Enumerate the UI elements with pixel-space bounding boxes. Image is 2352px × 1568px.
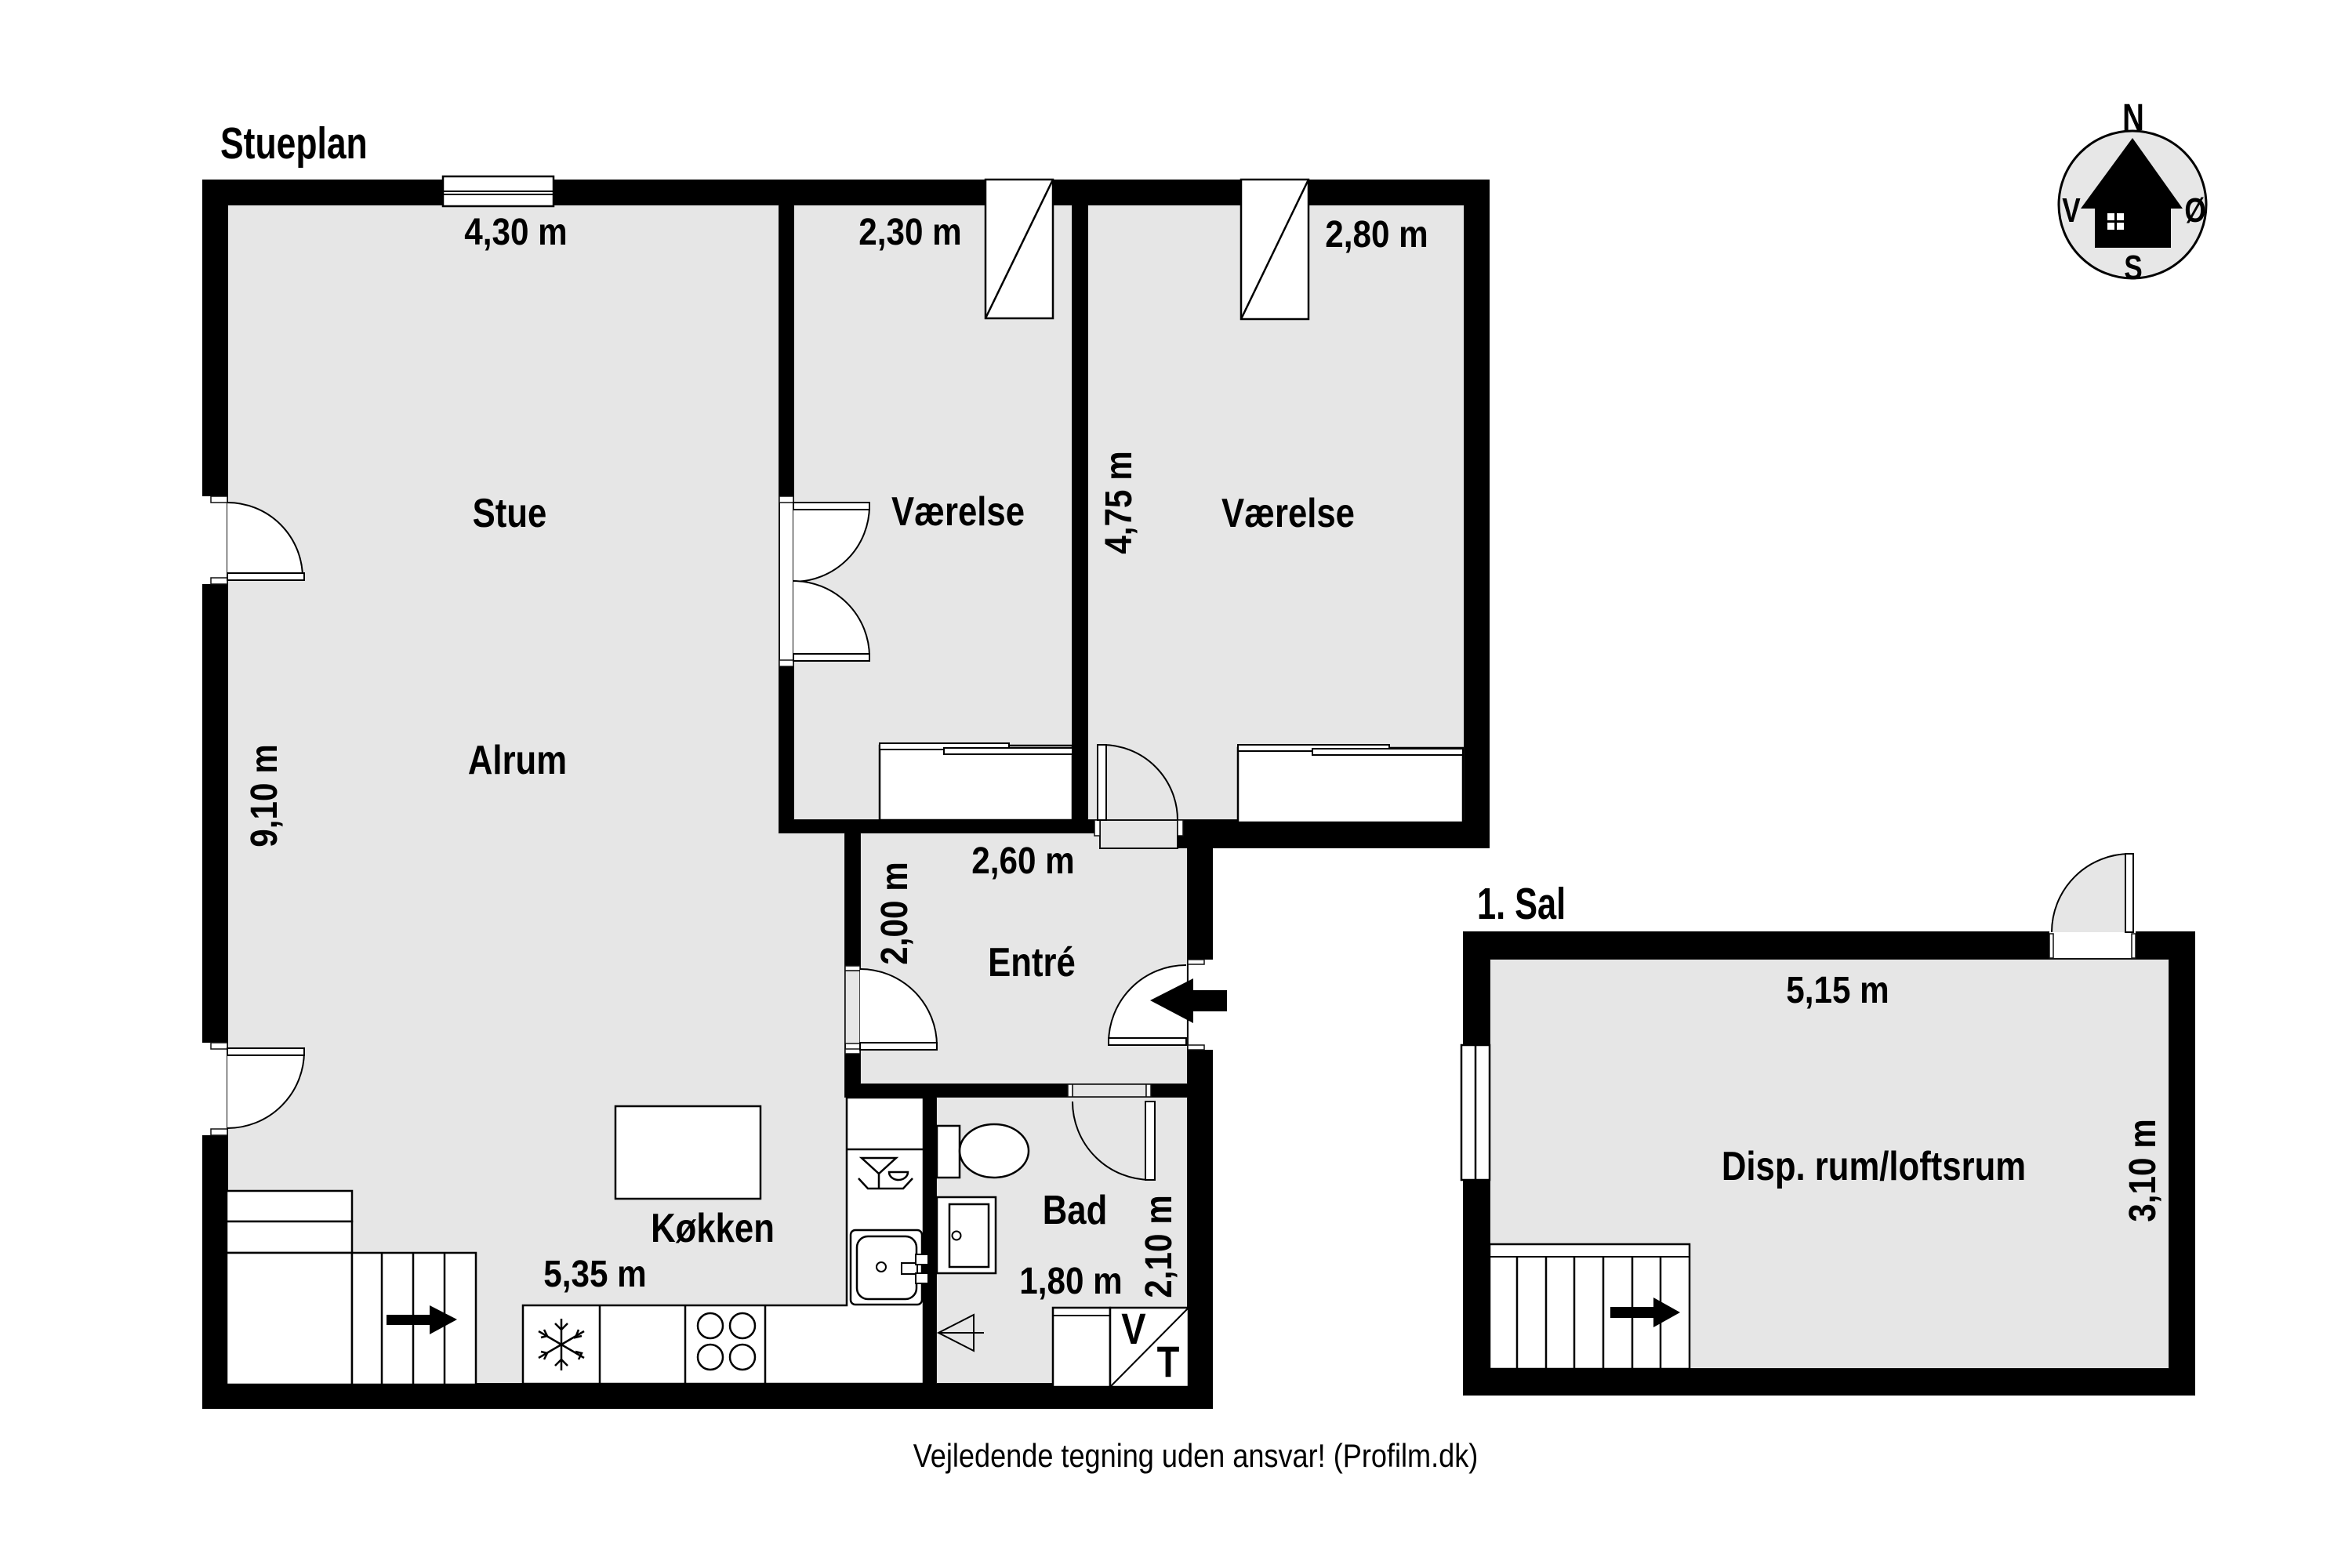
svg-text:5,15 m: 5,15 m bbox=[1786, 968, 1889, 1011]
svg-text:3,10 m: 3,10 m bbox=[2121, 1119, 2163, 1221]
svg-text:9,10 m: 9,10 m bbox=[242, 744, 285, 847]
svg-text:S: S bbox=[2124, 249, 2142, 287]
svg-text:Værelse: Værelse bbox=[1221, 492, 1355, 536]
svg-text:4,30 m: 4,30 m bbox=[464, 210, 567, 252]
svg-text:Entré: Entré bbox=[988, 941, 1076, 985]
svg-text:2,60 m: 2,60 m bbox=[971, 839, 1074, 881]
svg-text:Ø: Ø bbox=[2184, 191, 2205, 230]
svg-text:1,80 m: 1,80 m bbox=[1019, 1259, 1122, 1301]
svg-text:Vejledende tegning uden ansvar: Vejledende tegning uden ansvar! (Profilm… bbox=[913, 1439, 1479, 1475]
svg-text:2,30 m: 2,30 m bbox=[858, 210, 961, 252]
svg-text:Stueplan: Stueplan bbox=[220, 118, 368, 169]
svg-text:Værelse: Værelse bbox=[891, 490, 1025, 535]
svg-text:Køkken: Køkken bbox=[651, 1207, 775, 1251]
svg-text:5,35 m: 5,35 m bbox=[543, 1252, 646, 1294]
svg-text:N: N bbox=[2122, 97, 2144, 139]
svg-text:2,00 m: 2,00 m bbox=[873, 862, 915, 964]
svg-text:Bad: Bad bbox=[1043, 1189, 1108, 1233]
svg-text:2,10 m: 2,10 m bbox=[1137, 1195, 1179, 1298]
svg-text:V: V bbox=[2062, 191, 2081, 230]
svg-text:Disp. rum/loftsrum: Disp. rum/loftsrum bbox=[1722, 1145, 2026, 1189]
svg-text:Stue: Stue bbox=[473, 492, 547, 536]
svg-text:T: T bbox=[1157, 1337, 1180, 1386]
svg-text:2,80 m: 2,80 m bbox=[1325, 212, 1428, 255]
svg-text:V: V bbox=[1121, 1304, 1146, 1353]
svg-text:1. Sal: 1. Sal bbox=[1477, 878, 1566, 928]
svg-text:4,75 m: 4,75 m bbox=[1097, 451, 1139, 554]
svg-text:Alrum: Alrum bbox=[468, 739, 567, 783]
